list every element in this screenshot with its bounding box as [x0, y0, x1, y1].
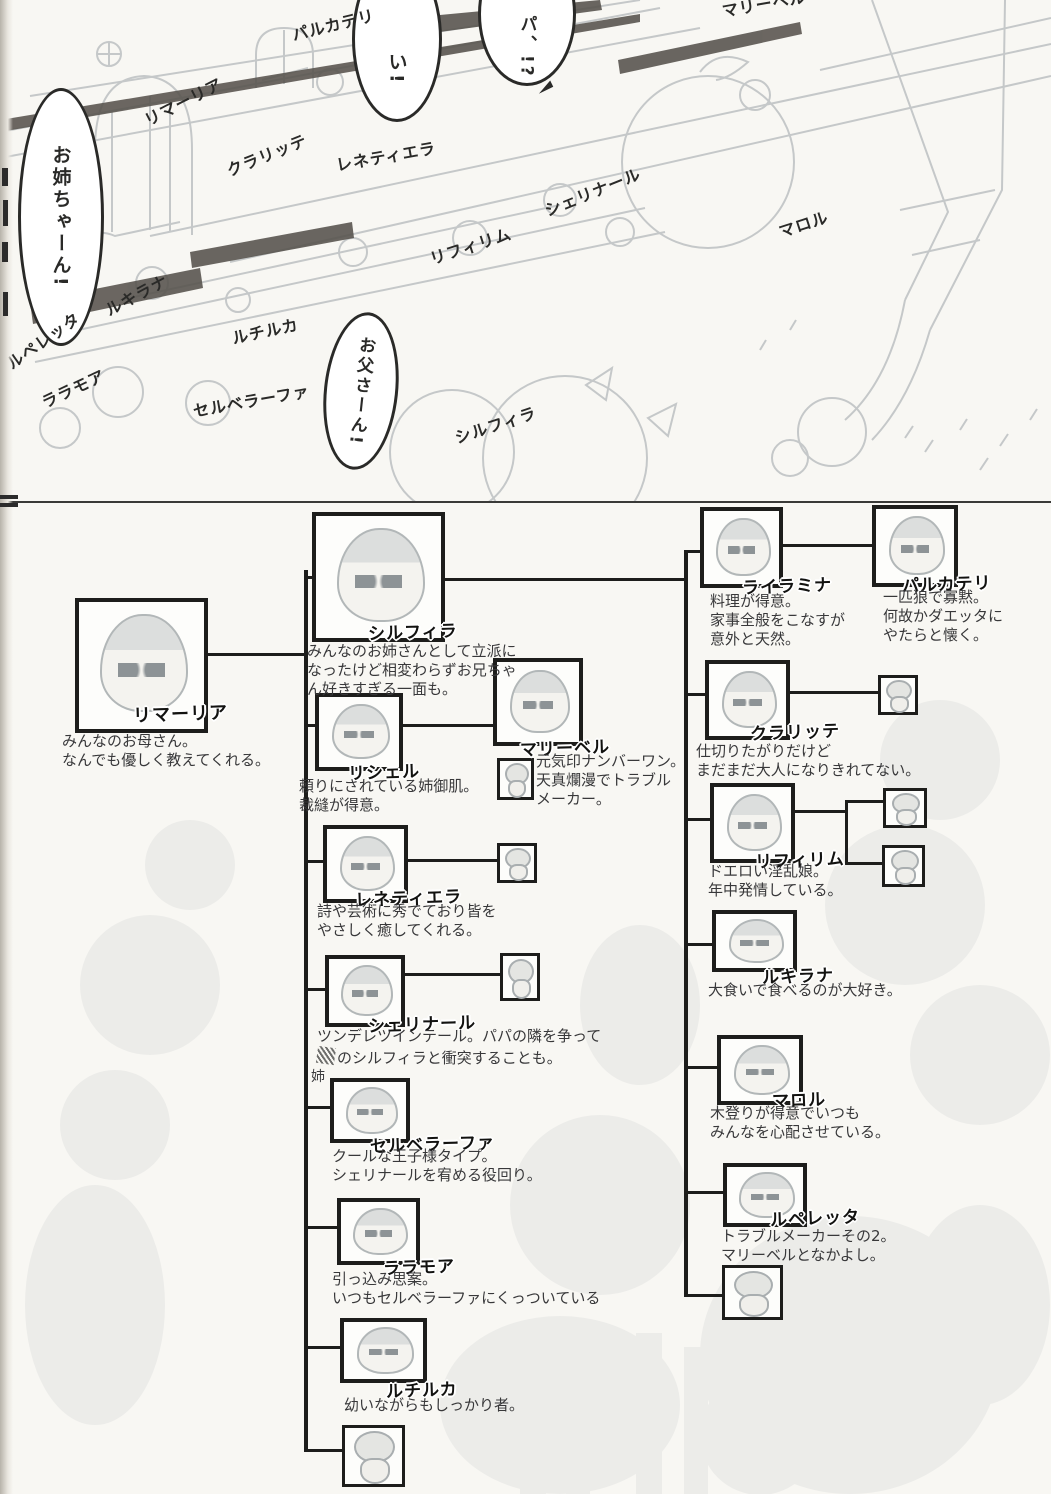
desc-renetiera: 詩や芸術に秀でており皆を やさしく癒してくれる。 — [317, 902, 597, 940]
desc-ruperetta: トラブルメーカーその2。 マリーベルとなかよし。 — [721, 1227, 951, 1265]
desc-rifirimu: ドエロい淫乱娘。 年中発情している。 — [708, 862, 888, 900]
desc-risheru: 頼りにされている姉御肌。 裁縫が得意。 — [299, 777, 559, 815]
desc-sherinaru-line1: ツンデレツインテール。パパの隣を争って — [317, 1027, 677, 1046]
chibi-ruperetta — [722, 1265, 783, 1320]
scanned-doujin-page: お姉ちゃーん! い! パ、!? お父さーん! リマーリア パルカテリ クラリッテ… — [0, 0, 1051, 1494]
connector-stub — [684, 693, 705, 696]
portrait-face — [350, 1325, 416, 1375]
portrait-ruchiruka — [340, 1318, 427, 1383]
speech-bubble-oneechan: お姉ちゃーん! — [18, 88, 104, 346]
connector-rairamina-parukateri — [783, 544, 872, 547]
desc-mariberu: 元気印ナンバーワン。 天真爛漫でトラブル メーカー。 — [536, 752, 701, 810]
chibi-renetiera — [497, 843, 537, 883]
scan-mark — [0, 503, 18, 507]
connector-stub — [684, 943, 712, 946]
desc-rimaria: みんなのお母さん。 なんでも優しく教えてくれる。 — [62, 732, 342, 770]
chart-name-rimaria: リマーリア — [133, 698, 229, 727]
desc-parukateri: 一匹狼で寡黙。 何故かダエッタに やたらと懐く。 — [883, 588, 1048, 646]
connector-renetiera-chibi — [408, 859, 497, 862]
speech-text: パ、!? — [515, 15, 540, 79]
connector-stub — [684, 818, 710, 821]
connector-stub — [684, 1191, 723, 1194]
connector-stub — [304, 1449, 344, 1452]
speech-text: い! — [384, 52, 411, 86]
portrait-face — [347, 1206, 410, 1258]
desc-raramoa: 引っ込み思案。 いつもセルベラーファにくっついている — [332, 1270, 682, 1308]
portrait-face — [340, 1085, 400, 1135]
scan-mark — [3, 200, 8, 226]
chibi-kuraritte — [878, 675, 918, 715]
scan-mark — [2, 242, 8, 262]
portrait-face — [720, 791, 785, 854]
desc-seruberafa: クールな王子様タイプ。 シェリナールを宥める役回り。 — [332, 1147, 622, 1185]
chibi-rifirimu-2 — [882, 845, 925, 887]
desc-maroru: 木登りが得意でいつも みんなを心配させている。 — [710, 1104, 940, 1142]
portrait-face — [710, 515, 773, 579]
scan-mark — [3, 292, 8, 316]
connector-kuraritte-chibi — [790, 691, 878, 694]
desc-ruchiruka: 幼いながらもしっかり者。 — [344, 1396, 604, 1415]
speech-text: お父さーん! — [343, 335, 379, 448]
connector-stub — [684, 550, 700, 553]
connector-stub — [304, 1346, 342, 1349]
connector-stub — [304, 1226, 338, 1229]
connector-stub — [684, 1294, 722, 1297]
scan-mark — [0, 495, 18, 499]
portrait-face — [326, 523, 431, 630]
connector-left-trunk — [304, 570, 308, 1452]
connector-rifirimu-branch — [795, 810, 848, 813]
speech-text: お姉ちゃーん! — [48, 145, 75, 289]
connector-stub — [304, 1106, 332, 1109]
desc-rairamina: 料理が得意。 家事全般をこなすが 意外と天然。 — [710, 592, 890, 650]
correction-kanji: 姉 — [311, 1066, 325, 1086]
section-divider — [0, 501, 1051, 503]
connector-stub — [684, 1066, 717, 1069]
desc-sherinaru-line2: のシルフィラと衝突することも。 — [317, 1047, 677, 1068]
connector-sherinaru-chibi — [405, 973, 500, 976]
connector-rimaria — [207, 653, 307, 656]
desc-sherinaru-line2-text: のシルフィラと衝突することも。 — [337, 1047, 562, 1068]
connector-risheru-mariberu — [403, 724, 493, 727]
crossed-out-character — [316, 1046, 336, 1065]
connector-rifirimu-chibi1 — [845, 800, 883, 803]
desc-rukirana: 大食いで食べるのが大好き。 — [708, 981, 978, 1000]
desc-kuraritte: 仕切りたがりだけど まだまだ大人になりきれてない。 — [696, 742, 976, 780]
chart-name-kuraritte: クラリッテ — [750, 716, 841, 744]
connector-rifirimu-branch — [845, 800, 848, 865]
desc-shirufira: みんなのお姉さんとして立派に なったけど相変わらずお兄ちゃ ん好きすぎる一面も。 — [307, 642, 607, 700]
portrait-face — [722, 917, 787, 965]
portrait-face — [882, 513, 948, 578]
connector-right-trunk — [684, 550, 688, 1297]
chibi-rifirimu-1 — [883, 788, 927, 828]
scan-mark — [2, 168, 8, 186]
connector-cross — [445, 578, 688, 581]
chibi-sherinaru — [500, 953, 540, 1001]
chibi-ruchiruka — [342, 1425, 405, 1487]
chart-name-shirufira: シルフィラ — [368, 616, 458, 644]
